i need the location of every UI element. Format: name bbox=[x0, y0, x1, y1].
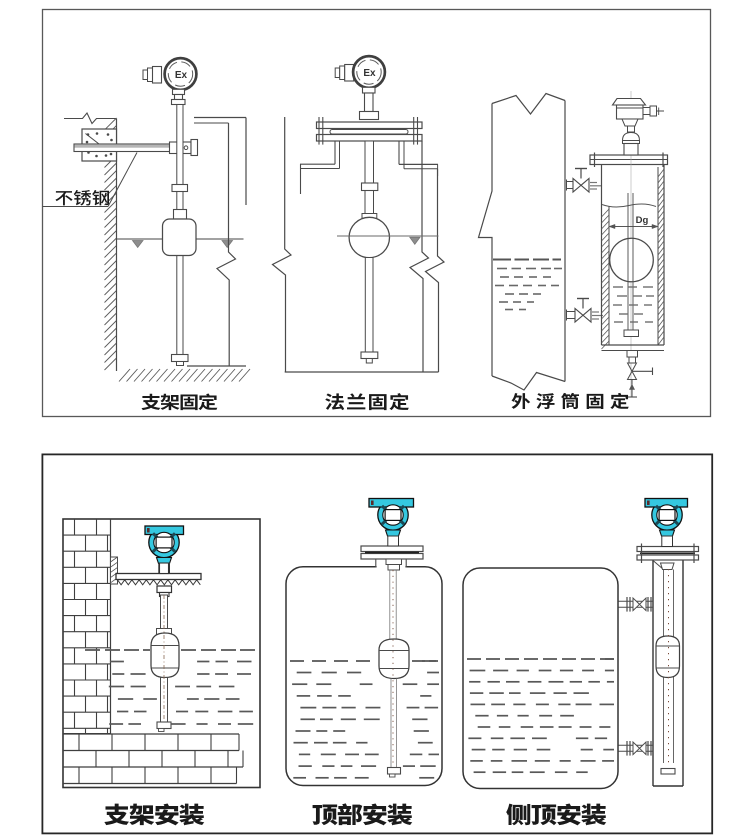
svg-text:Dg: Dg bbox=[636, 215, 649, 226]
svg-text:Ex: Ex bbox=[363, 68, 376, 79]
svg-text:Ex: Ex bbox=[175, 70, 188, 81]
